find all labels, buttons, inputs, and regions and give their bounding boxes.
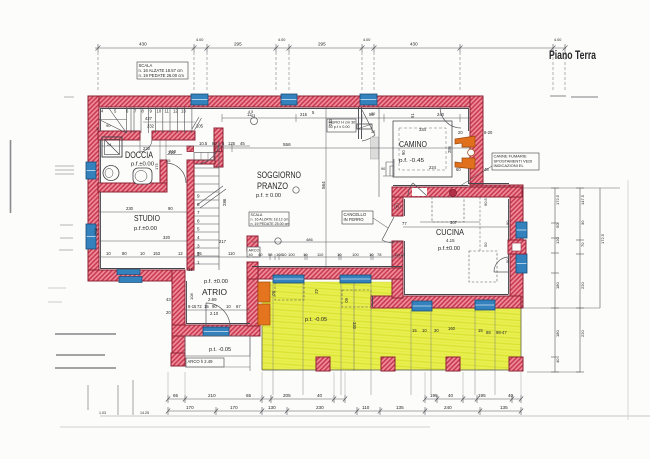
svg-text:15: 15 bbox=[478, 328, 483, 333]
svg-text:8-20: 8-20 bbox=[484, 130, 493, 135]
svg-text:4.00: 4.00 bbox=[196, 38, 203, 42]
svg-text:285: 285 bbox=[447, 145, 452, 153]
svg-text:88: 88 bbox=[486, 330, 491, 335]
svg-text:30: 30 bbox=[580, 220, 585, 225]
svg-text:60: 60 bbox=[271, 291, 276, 296]
svg-text:5: 5 bbox=[197, 227, 200, 232]
svg-text:120: 120 bbox=[555, 237, 560, 244]
svg-text:p.f. ±0.00: p.f. ±0.00 bbox=[204, 279, 228, 285]
svg-text:6: 6 bbox=[197, 218, 200, 223]
svg-text:20: 20 bbox=[166, 310, 171, 315]
svg-text:1: 1 bbox=[197, 260, 200, 265]
svg-text:125: 125 bbox=[228, 141, 236, 146]
svg-text:430: 430 bbox=[410, 42, 418, 47]
svg-text:564: 564 bbox=[321, 181, 326, 189]
svg-text:320: 320 bbox=[163, 235, 171, 240]
svg-text:p.f.±0.00: p.f.±0.00 bbox=[131, 162, 154, 168]
svg-text:n. 16 ALZATE 18.12 cm: n. 16 ALZATE 18.12 cm bbox=[251, 218, 289, 222]
svg-text:334: 334 bbox=[419, 127, 427, 132]
svg-text:1.03: 1.03 bbox=[99, 411, 106, 415]
svg-text:43: 43 bbox=[166, 297, 171, 302]
svg-text:p.t. -0.05: p.t. -0.05 bbox=[305, 317, 327, 323]
svg-text:100: 100 bbox=[352, 252, 359, 257]
svg-text:STUDIO: STUDIO bbox=[134, 213, 160, 223]
svg-text:70: 70 bbox=[580, 242, 585, 247]
svg-text:220: 220 bbox=[580, 282, 585, 289]
svg-text:78: 78 bbox=[377, 252, 382, 257]
svg-text:215: 215 bbox=[300, 112, 308, 117]
svg-text:4.00: 4.00 bbox=[363, 38, 370, 42]
svg-text:9: 9 bbox=[197, 194, 200, 199]
svg-text:180: 180 bbox=[555, 282, 560, 289]
svg-text:220: 220 bbox=[143, 146, 151, 151]
svg-text:240: 240 bbox=[444, 405, 452, 410]
svg-text:58: 58 bbox=[268, 252, 273, 257]
svg-text:p.f.±0.00: p.f.±0.00 bbox=[438, 246, 460, 252]
svg-text:172.5: 172.5 bbox=[555, 194, 560, 205]
svg-text:SOGGIORNO: SOGGIORNO bbox=[257, 170, 301, 180]
svg-text:SCALA: SCALA bbox=[251, 213, 263, 217]
svg-text:7: 7 bbox=[197, 210, 200, 215]
svg-text:100: 100 bbox=[288, 252, 295, 257]
svg-text:11x12: 11x12 bbox=[394, 252, 405, 257]
svg-text:220: 220 bbox=[580, 330, 585, 337]
svg-text:12: 12 bbox=[178, 251, 183, 256]
svg-text:42: 42 bbox=[314, 289, 319, 294]
svg-text:13: 13 bbox=[181, 109, 186, 114]
svg-text:10: 10 bbox=[106, 251, 111, 256]
svg-text:11: 11 bbox=[165, 109, 170, 114]
svg-text:50: 50 bbox=[483, 242, 488, 247]
svg-text:160: 160 bbox=[448, 326, 456, 331]
svg-text:65: 65 bbox=[173, 393, 179, 398]
svg-text:IN FERRO: IN FERRO bbox=[344, 217, 365, 222]
svg-text:180: 180 bbox=[555, 330, 560, 337]
svg-text:6-15: 6-15 bbox=[188, 304, 197, 309]
svg-text:105: 105 bbox=[196, 124, 204, 129]
svg-text:12: 12 bbox=[173, 109, 178, 114]
svg-text:12: 12 bbox=[247, 112, 252, 117]
svg-text:CAMINO: CAMINO bbox=[399, 139, 427, 149]
svg-text:60: 60 bbox=[344, 298, 349, 303]
svg-text:240: 240 bbox=[437, 112, 445, 117]
svg-text:PRANZO: PRANZO bbox=[257, 181, 288, 191]
svg-text:72: 72 bbox=[197, 304, 202, 309]
svg-text:90: 90 bbox=[106, 123, 111, 128]
svg-text:30: 30 bbox=[371, 130, 375, 134]
svg-text:ARCO h 2.49: ARCO h 2.49 bbox=[188, 359, 214, 364]
svg-text:170: 170 bbox=[230, 405, 238, 410]
svg-text:4.15: 4.15 bbox=[446, 238, 455, 243]
svg-text:10: 10 bbox=[369, 252, 374, 257]
svg-text:45: 45 bbox=[240, 141, 245, 146]
svg-text:15: 15 bbox=[166, 158, 171, 163]
svg-text:110: 110 bbox=[228, 251, 235, 256]
svg-text:10: 10 bbox=[337, 252, 342, 257]
svg-text:CUCINA: CUCINA bbox=[436, 227, 464, 237]
svg-text:4: 4 bbox=[197, 235, 200, 240]
svg-text:DOCCIA: DOCCIA bbox=[125, 150, 153, 160]
svg-text:204: 204 bbox=[94, 227, 99, 235]
svg-text:175: 175 bbox=[154, 163, 159, 170]
svg-text:90: 90 bbox=[505, 220, 510, 225]
svg-text:10: 10 bbox=[226, 304, 231, 309]
svg-text:p.t. -0.05: p.t. -0.05 bbox=[209, 347, 231, 353]
svg-text:40: 40 bbox=[508, 393, 514, 398]
svg-text:20: 20 bbox=[458, 130, 463, 135]
svg-text:10: 10 bbox=[157, 109, 162, 114]
svg-text:170: 170 bbox=[186, 405, 194, 410]
svg-text:p.f.±0.00: p.f.±0.00 bbox=[134, 226, 157, 232]
svg-text:15: 15 bbox=[204, 304, 209, 309]
svg-text:147.5: 147.5 bbox=[580, 194, 585, 205]
svg-text:232: 232 bbox=[147, 124, 155, 129]
svg-text:4.00: 4.00 bbox=[278, 38, 285, 42]
svg-text:295: 295 bbox=[318, 42, 326, 47]
svg-text:98-47: 98-47 bbox=[496, 330, 507, 335]
svg-text:R: R bbox=[396, 204, 399, 209]
svg-text:556: 556 bbox=[283, 142, 291, 147]
svg-text:90: 90 bbox=[212, 304, 217, 309]
svg-text:10: 10 bbox=[282, 252, 287, 257]
svg-text:90: 90 bbox=[401, 150, 406, 155]
svg-text:427: 427 bbox=[145, 116, 153, 121]
svg-text:40: 40 bbox=[258, 252, 263, 257]
svg-text:2.69: 2.69 bbox=[208, 297, 217, 302]
svg-text:90: 90 bbox=[381, 167, 385, 171]
svg-text:33: 33 bbox=[188, 267, 193, 272]
svg-text:51: 51 bbox=[410, 113, 415, 118]
svg-text:50: 50 bbox=[555, 223, 560, 228]
svg-text:65: 65 bbox=[246, 393, 252, 398]
svg-text:90: 90 bbox=[168, 206, 173, 211]
svg-text:40: 40 bbox=[317, 393, 323, 398]
svg-text:230: 230 bbox=[316, 405, 324, 410]
svg-text:p.f. ± 0.00: p.f. ± 0.00 bbox=[256, 193, 281, 199]
svg-text:10: 10 bbox=[303, 252, 308, 257]
svg-text:10.5: 10.5 bbox=[199, 141, 208, 146]
svg-text:20: 20 bbox=[371, 112, 375, 116]
svg-text:195: 195 bbox=[478, 393, 486, 398]
svg-text:430: 430 bbox=[139, 42, 147, 47]
svg-text:p.f. -0.45: p.f. -0.45 bbox=[399, 158, 424, 164]
svg-text:172.5: 172.5 bbox=[600, 233, 605, 244]
svg-text:67: 67 bbox=[236, 304, 241, 309]
svg-text:295: 295 bbox=[234, 42, 242, 47]
svg-text:Piano Terra: Piano Terra bbox=[549, 48, 596, 62]
svg-text:286: 286 bbox=[222, 198, 227, 206]
svg-text:40: 40 bbox=[448, 393, 454, 398]
svg-text:n. 19 PEDATE 25.00 cm: n. 19 PEDATE 25.00 cm bbox=[251, 222, 290, 226]
svg-text:135: 135 bbox=[500, 405, 508, 410]
svg-text:95: 95 bbox=[197, 251, 202, 256]
svg-text:90.5: 90.5 bbox=[483, 197, 488, 206]
svg-text:n. 19 PEDATE 26.00 cm: n. 19 PEDATE 26.00 cm bbox=[139, 73, 185, 78]
svg-text:INDICAZIONI EL: INDICAZIONI EL bbox=[494, 163, 525, 168]
svg-text:224: 224 bbox=[429, 165, 437, 170]
svg-text:320: 320 bbox=[352, 322, 357, 330]
svg-text:205: 205 bbox=[283, 393, 291, 398]
svg-text:48: 48 bbox=[484, 167, 489, 172]
svg-text:307: 307 bbox=[450, 220, 458, 225]
svg-text:30: 30 bbox=[434, 328, 439, 333]
svg-text:210: 210 bbox=[168, 150, 176, 155]
svg-text:2.10: 2.10 bbox=[210, 311, 219, 316]
svg-text:50: 50 bbox=[505, 258, 510, 263]
svg-text:230: 230 bbox=[126, 206, 134, 211]
svg-text:80: 80 bbox=[122, 251, 127, 256]
svg-text:110: 110 bbox=[317, 252, 324, 257]
svg-text:10: 10 bbox=[140, 251, 145, 256]
svg-text:ATRIO: ATRIO bbox=[202, 287, 227, 297]
svg-text:40: 40 bbox=[555, 358, 560, 363]
svg-text:210: 210 bbox=[208, 393, 216, 398]
svg-text:3: 3 bbox=[197, 243, 200, 248]
svg-text:217: 217 bbox=[219, 239, 227, 244]
svg-text:108: 108 bbox=[189, 293, 194, 300]
svg-text:135: 135 bbox=[396, 405, 404, 410]
svg-text:80: 80 bbox=[212, 141, 217, 146]
svg-text:4.00: 4.00 bbox=[554, 38, 561, 42]
svg-text:130: 130 bbox=[268, 405, 276, 410]
svg-text:77: 77 bbox=[402, 221, 407, 226]
svg-text:153: 153 bbox=[153, 251, 161, 256]
svg-text:486: 486 bbox=[306, 237, 313, 242]
svg-text:40: 40 bbox=[249, 253, 253, 257]
svg-text:210: 210 bbox=[328, 118, 333, 126]
svg-text:110: 110 bbox=[362, 405, 370, 410]
svg-text:14.25: 14.25 bbox=[140, 411, 149, 415]
svg-text:60: 60 bbox=[456, 167, 461, 172]
svg-text:10: 10 bbox=[422, 328, 427, 333]
svg-text:15: 15 bbox=[412, 328, 417, 333]
svg-text:8: 8 bbox=[197, 202, 200, 207]
